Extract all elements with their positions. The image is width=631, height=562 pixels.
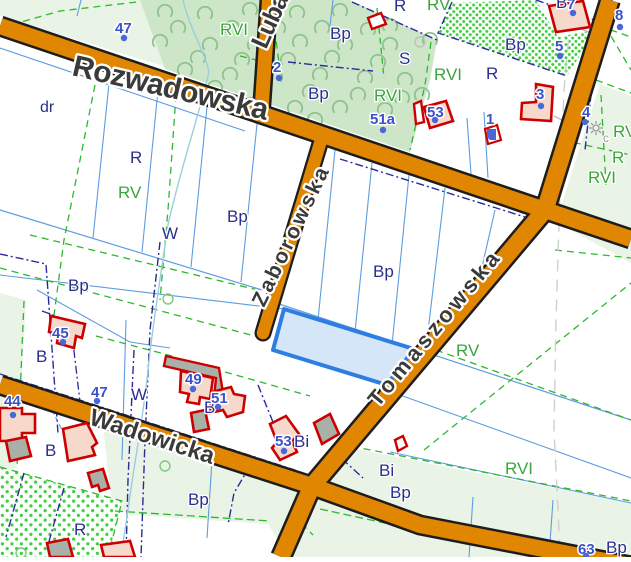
svg-text:B: B xyxy=(556,0,567,12)
svg-text:W: W xyxy=(131,385,147,404)
svg-text:8: 8 xyxy=(615,7,623,24)
svg-text:Bp: Bp xyxy=(68,276,89,295)
svg-text:Bp: Bp xyxy=(308,84,329,103)
svg-text:Bp: Bp xyxy=(606,538,627,557)
svg-text:R: R xyxy=(486,64,498,83)
svg-text:W: W xyxy=(162,224,178,243)
svg-text:RVI: RVI xyxy=(505,459,533,478)
svg-text:47: 47 xyxy=(115,20,132,37)
svg-text:Bp: Bp xyxy=(390,483,411,502)
svg-text:B: B xyxy=(36,347,47,366)
svg-text:3: 3 xyxy=(536,86,544,103)
svg-text:1: 1 xyxy=(486,111,494,128)
svg-text:Bp: Bp xyxy=(188,490,209,509)
svg-text:B: B xyxy=(45,441,56,460)
svg-text:RV: RV xyxy=(118,183,142,202)
svg-text:S: S xyxy=(399,49,410,68)
svg-text:Bp: Bp xyxy=(330,24,351,43)
svg-text:R: R xyxy=(130,148,142,167)
svg-text:Bp: Bp xyxy=(505,35,526,54)
svg-text:53: 53 xyxy=(275,433,292,450)
svg-text:RVI: RVI xyxy=(374,86,402,105)
svg-text:5: 5 xyxy=(555,38,563,55)
svg-text:RVI: RVI xyxy=(220,20,248,39)
svg-text:47: 47 xyxy=(91,384,108,401)
svg-text:4: 4 xyxy=(582,104,591,121)
svg-text:RVI: RVI xyxy=(434,65,462,84)
svg-text:2: 2 xyxy=(273,59,281,76)
svg-text:dr: dr xyxy=(40,99,55,116)
svg-text:Bi: Bi xyxy=(379,461,394,480)
svg-text:c: c xyxy=(603,131,609,145)
svg-text:RV: RV xyxy=(456,341,480,360)
svg-text:RV: RV xyxy=(427,0,451,14)
svg-text:51a: 51a xyxy=(370,111,396,128)
svg-text:Bp: Bp xyxy=(373,262,394,281)
svg-text:49: 49 xyxy=(185,371,202,388)
svg-text:R: R xyxy=(74,520,86,539)
svg-text:RV: RV xyxy=(613,122,631,141)
svg-text:Bi: Bi xyxy=(294,432,309,451)
svg-text:44: 44 xyxy=(4,393,21,410)
svg-text:Bp: Bp xyxy=(227,207,248,226)
svg-text:45: 45 xyxy=(52,325,69,342)
svg-text:RVI: RVI xyxy=(588,168,616,187)
svg-text:R: R xyxy=(394,0,406,15)
svg-text:R: R xyxy=(612,148,624,167)
